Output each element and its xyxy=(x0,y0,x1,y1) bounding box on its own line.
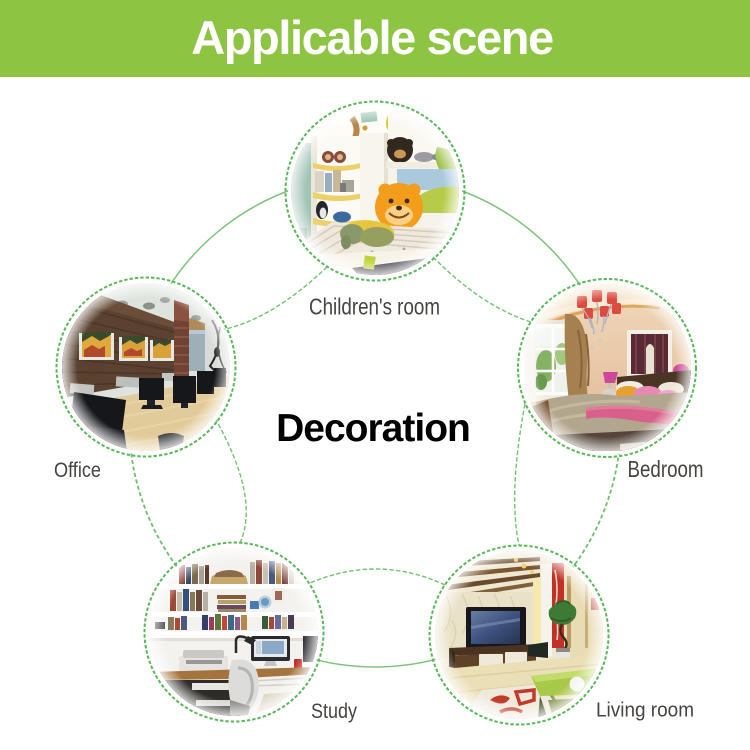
svg-text:Office: Office xyxy=(54,458,101,482)
svg-text:Bedroom: Bedroom xyxy=(628,456,704,482)
svg-text:Children's room: Children's room xyxy=(309,294,440,320)
svg-text:Decoration: Decoration xyxy=(276,407,470,450)
svg-text:Living room: Living room xyxy=(596,700,694,722)
svg-text:Study: Study xyxy=(311,700,357,723)
svg-text:Applicable scene: Applicable scene xyxy=(191,11,553,64)
